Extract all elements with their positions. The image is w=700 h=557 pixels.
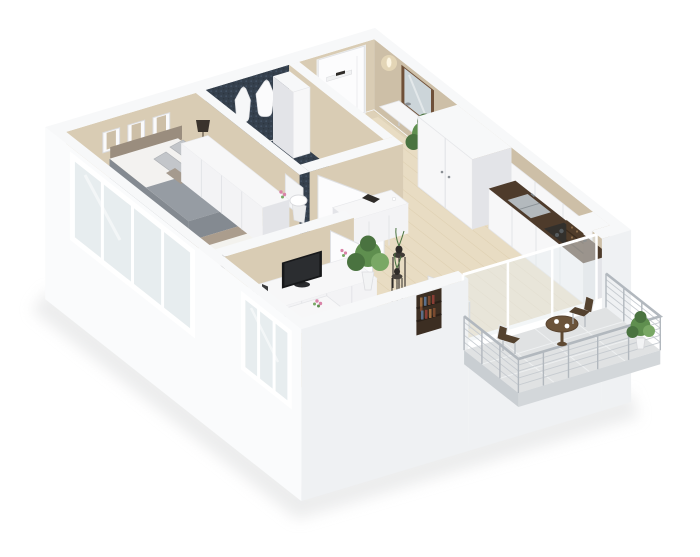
coffee-cup [565, 324, 570, 329]
coffee-cup [554, 319, 559, 324]
wall-sconce [381, 55, 397, 71]
bathroom-cabinet [273, 71, 310, 158]
floor-plan-render [0, 0, 700, 557]
floor-plan-canvas [0, 0, 700, 557]
bookshelf-niche [416, 288, 441, 336]
